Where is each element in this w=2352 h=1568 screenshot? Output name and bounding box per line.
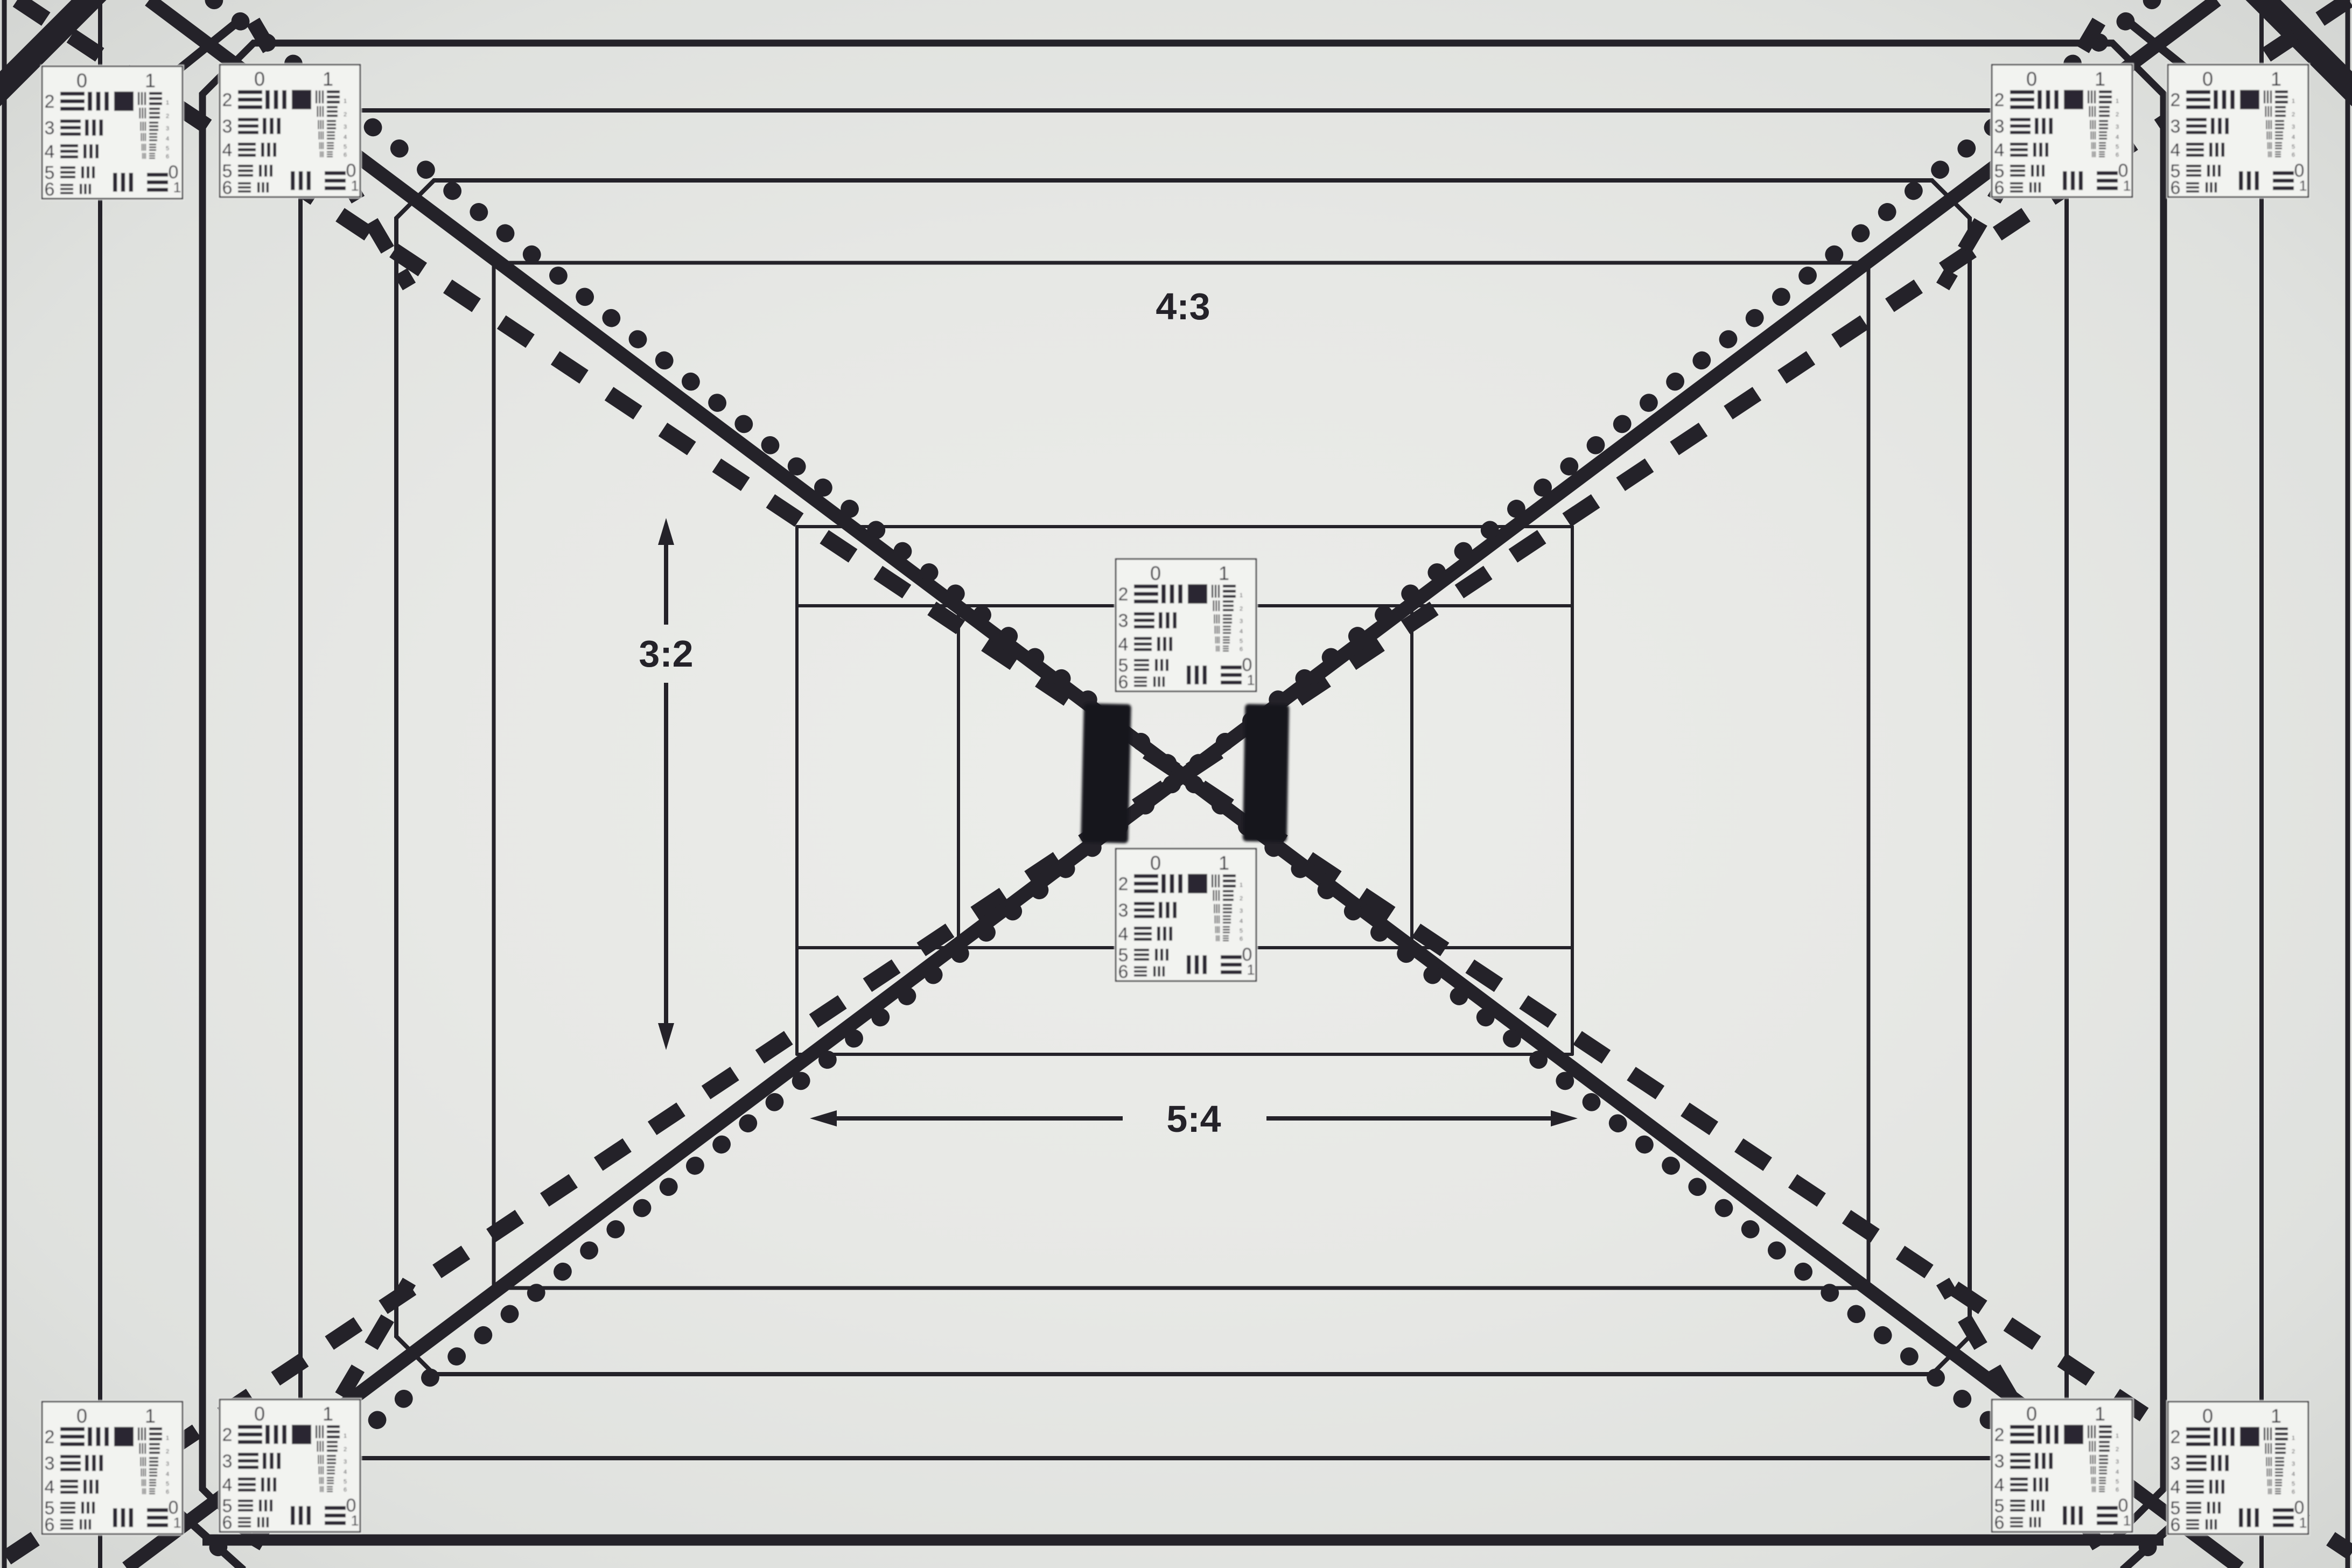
- tri-bar: [1134, 874, 1158, 878]
- tri-bar: [96, 92, 101, 111]
- tri-bar: [2092, 1466, 2094, 1474]
- tri-bar: [265, 1425, 270, 1444]
- tri-bar: [2275, 1479, 2282, 1481]
- tri-bar: [238, 170, 253, 172]
- tri-bar: [104, 1427, 109, 1446]
- target-number: 6: [344, 152, 347, 158]
- tri-bar: [327, 148, 334, 149]
- tri-bar: [2035, 1453, 2039, 1469]
- tri-bar: [317, 106, 318, 117]
- tri-bar: [2269, 120, 2270, 129]
- tri-bar: [1216, 904, 1217, 913]
- tri-bar: [2230, 1427, 2235, 1446]
- tri-bar: [238, 1521, 251, 1523]
- target-number: 6: [344, 1487, 347, 1493]
- tri-bar: [2093, 1477, 2094, 1484]
- tri-bar: [2038, 1425, 2042, 1444]
- label-aspect-3-2: 3:2: [639, 633, 693, 675]
- tri-bar: [2275, 153, 2281, 155]
- tri-bar: [2010, 1440, 2034, 1444]
- tri-bar: [2207, 1502, 2210, 1514]
- tri-bar: [327, 1431, 340, 1433]
- tri-bar: [2088, 1425, 2089, 1438]
- tri-bar: [1134, 882, 1158, 886]
- tri-bar: [319, 1466, 320, 1474]
- tri-bar: [145, 108, 146, 118]
- tri-bar: [2207, 165, 2210, 177]
- tri-bar: [1134, 648, 1152, 651]
- target-number: 6: [2171, 178, 2181, 198]
- tri-bar: [92, 166, 95, 178]
- tri-bar: [325, 1506, 346, 1510]
- tri-bar: [263, 118, 267, 134]
- tri-bar: [2099, 1436, 2112, 1438]
- tri-bar: [238, 1425, 262, 1429]
- target-number: 1: [1240, 882, 1243, 888]
- tri-bar: [1221, 681, 1242, 684]
- tri-bar: [1166, 659, 1168, 671]
- tri-bar: [2186, 174, 2201, 177]
- tri-bar: [2264, 90, 2265, 103]
- tri-bar: [2095, 1441, 2096, 1452]
- tri-bar: [238, 1459, 258, 1462]
- tri-bar: [2099, 1480, 2106, 1481]
- target-number: 4: [1240, 918, 1243, 925]
- target-number: 4: [166, 136, 169, 142]
- target-number: 5: [2116, 144, 2119, 150]
- target-number: 6: [2292, 1489, 2295, 1495]
- tri-bar: [261, 143, 264, 157]
- tri-bar: [2275, 110, 2286, 113]
- tri-bar: [149, 1461, 158, 1462]
- tri-bar: [1221, 970, 1242, 974]
- tri-bar: [149, 97, 162, 100]
- tri-bar: [1159, 902, 1163, 918]
- target-number: 3: [1118, 611, 1129, 631]
- tri-bar: [327, 156, 333, 157]
- tri-bar: [2275, 1452, 2286, 1454]
- tri-bar: [2099, 1491, 2105, 1492]
- tri-bar: [317, 1441, 318, 1452]
- target-number: 4: [45, 1477, 55, 1497]
- tri-bar: [2035, 118, 2039, 134]
- tri-bar: [1134, 585, 1158, 589]
- target-square: [114, 1427, 134, 1446]
- tri-bar: [1134, 954, 1149, 956]
- tri-bar: [2097, 1506, 2118, 1510]
- target-number: 6: [1118, 672, 1129, 692]
- tri-bar: [149, 122, 158, 123]
- tri-bar: [149, 136, 157, 138]
- tri-bar: [2186, 1523, 2199, 1525]
- tri-bar: [2186, 148, 2204, 151]
- tri-bar: [238, 131, 258, 134]
- tri-bar: [1134, 669, 1149, 671]
- tri-bar: [2010, 118, 2031, 121]
- tri-bar: [257, 183, 260, 193]
- target-number: 2: [222, 90, 233, 110]
- tri-bar: [321, 1477, 322, 1484]
- tri-bar: [147, 188, 168, 192]
- tri-bar: [2186, 1507, 2201, 1509]
- tri-bar: [60, 1491, 78, 1494]
- tri-bar: [1221, 666, 1242, 669]
- target-number: 1: [2095, 1403, 2105, 1425]
- tri-bar: [2094, 151, 2094, 157]
- tri-bar: [2092, 106, 2093, 117]
- tri-bar: [2186, 106, 2210, 109]
- tri-bar: [147, 180, 168, 184]
- tri-bar: [1134, 600, 1158, 604]
- tri-bar: [318, 120, 319, 129]
- tri-bar: [1203, 955, 1207, 974]
- target-square: [2064, 90, 2083, 109]
- tri-bar: [318, 1455, 319, 1464]
- tri-bar: [1218, 874, 1220, 887]
- target-number: 2: [1994, 90, 2005, 110]
- tri-bar: [322, 90, 324, 103]
- tri-bar: [2088, 90, 2089, 103]
- tri-bar: [145, 144, 146, 151]
- tri-bar: [2268, 106, 2269, 117]
- tri-bar: [273, 1478, 276, 1492]
- tri-bar: [149, 144, 156, 145]
- target-number: 1: [1219, 562, 1229, 584]
- tri-bar: [2010, 90, 2034, 94]
- target-number: 1: [2123, 178, 2131, 194]
- tri-bar: [2275, 1468, 2283, 1470]
- tri-bar: [2049, 118, 2053, 134]
- tri-bar: [2046, 1425, 2050, 1444]
- tri-bar: [1163, 637, 1166, 651]
- tri-bar: [327, 106, 338, 108]
- tri-bar: [147, 1516, 168, 1520]
- tri-bar: [2186, 183, 2199, 185]
- tri-bar: [2010, 143, 2028, 145]
- tri-bar: [2099, 120, 2108, 122]
- target-number: 2: [2171, 90, 2181, 110]
- tri-bar: [2095, 1486, 2096, 1492]
- tri-bar: [2269, 1479, 2270, 1486]
- tri-bar: [1217, 926, 1218, 933]
- tri-bar: [2267, 1479, 2269, 1486]
- tri-bar: [2271, 1488, 2272, 1494]
- tri-bar: [2186, 1502, 2201, 1504]
- target-number: 2: [1240, 895, 1243, 902]
- target-number: 5: [2116, 1479, 2119, 1485]
- tri-bar: [267, 1478, 270, 1492]
- target-number: 0: [254, 68, 265, 90]
- tri-bar: [141, 133, 142, 141]
- tri-bar: [2090, 1455, 2091, 1464]
- target-number: 1: [1247, 672, 1255, 688]
- tri-bar: [2010, 1525, 2023, 1528]
- tri-bar: [238, 1440, 262, 1444]
- tri-bar: [2091, 90, 2092, 103]
- target-number: 3: [2116, 124, 2119, 130]
- tri-bar: [2010, 131, 2031, 134]
- tri-bar: [2031, 1500, 2034, 1511]
- tri-bar: [2095, 131, 2096, 139]
- tri-bar: [2010, 1459, 2031, 1462]
- tri-bar: [1134, 932, 1152, 935]
- target-number: 4: [2292, 1471, 2295, 1478]
- tri-bar: [1166, 612, 1170, 628]
- tri-bar: [138, 1427, 139, 1440]
- target-number: 6: [2116, 152, 2119, 158]
- tri-bar: [1134, 637, 1152, 640]
- tri-bar: [1163, 927, 1166, 941]
- tri-bar: [316, 90, 317, 103]
- tri-bar: [2091, 1425, 2092, 1438]
- tri-bar: [1223, 595, 1236, 598]
- tri-bar: [2010, 191, 2023, 193]
- tri-bar: [142, 1443, 143, 1454]
- tri-bar: [261, 1478, 264, 1492]
- tri-bar: [121, 1508, 125, 1527]
- target-number: 2: [2171, 1427, 2181, 1447]
- tri-bar: [2275, 1447, 2286, 1450]
- tri-bar: [327, 151, 333, 152]
- tri-bar: [2186, 1468, 2207, 1471]
- tri-bar: [325, 186, 346, 190]
- tri-bar: [145, 153, 146, 159]
- tri-bar: [2010, 124, 2031, 128]
- tri-bar: [1219, 600, 1220, 611]
- tri-bar: [327, 135, 335, 136]
- target-number: 4: [2292, 134, 2295, 141]
- tri-bar: [1134, 967, 1147, 969]
- tri-bar: [1223, 605, 1234, 607]
- tri-bar: [1223, 629, 1231, 631]
- target-number: 1: [1219, 852, 1229, 874]
- usaf-target: 012345612345601: [2166, 63, 2310, 199]
- tri-bar: [2010, 186, 2023, 188]
- tri-bar: [327, 115, 338, 117]
- tri-bar: [2186, 131, 2207, 134]
- tri-bar: [2010, 170, 2025, 172]
- tri-bar: [327, 145, 334, 146]
- tri-bar: [96, 1427, 101, 1446]
- target-number: 1: [351, 1513, 359, 1529]
- tri-bar: [2095, 151, 2096, 157]
- tri-bar: [2099, 124, 2108, 125]
- tri-bar: [1223, 904, 1232, 906]
- tri-bar: [1173, 902, 1177, 918]
- tri-bar: [238, 1504, 253, 1507]
- velcro-pad-right: [1243, 704, 1289, 842]
- tri-bar: [2099, 1466, 2107, 1468]
- tri-bar: [2099, 145, 2106, 146]
- tri-bar: [129, 1508, 133, 1527]
- tri-bar: [2270, 1488, 2270, 1494]
- tri-bar: [238, 1489, 256, 1492]
- tri-bar: [2054, 1425, 2059, 1444]
- tri-bar: [2010, 1478, 2028, 1480]
- tri-bar: [149, 1482, 156, 1483]
- tri-bar: [1216, 626, 1217, 634]
- target-number: 4: [344, 134, 347, 141]
- tri-bar: [1160, 949, 1163, 961]
- tri-bar: [1223, 937, 1229, 939]
- tri-bar: [149, 1438, 162, 1440]
- tri-bar: [145, 1488, 146, 1494]
- target-number: 3: [1240, 618, 1243, 625]
- tri-bar: [238, 1525, 251, 1528]
- tri-bar: [144, 1427, 146, 1440]
- tri-bar: [238, 1478, 256, 1480]
- tri-bar: [1215, 636, 1216, 643]
- tri-bar: [2275, 1443, 2286, 1445]
- tri-bar: [60, 184, 73, 186]
- tri-bar: [2275, 131, 2283, 133]
- tri-bar: [140, 122, 141, 131]
- tri-bar: [2218, 165, 2221, 177]
- tri-bar: [2089, 106, 2090, 117]
- tri-bar: [1218, 585, 1220, 598]
- tri-bar: [291, 171, 295, 190]
- tri-bar: [143, 1479, 144, 1486]
- tri-bar: [2091, 131, 2092, 139]
- tri-bar: [85, 1455, 89, 1471]
- tri-bar: [327, 1482, 334, 1484]
- tri-bar: [2270, 151, 2270, 157]
- target-number: 1: [323, 68, 333, 90]
- tri-bar: [1223, 899, 1234, 901]
- tri-bar: [2239, 1508, 2243, 1527]
- tri-bar: [89, 1480, 93, 1494]
- target-number: 1: [2299, 178, 2307, 194]
- tri-bar: [2267, 1468, 2268, 1476]
- tri-bar: [267, 143, 270, 157]
- tri-bar: [2271, 106, 2272, 117]
- tri-bar: [2099, 153, 2105, 155]
- tri-bar: [2270, 90, 2272, 103]
- tri-bar: [2218, 118, 2222, 134]
- tri-bar: [2271, 151, 2272, 157]
- tri-bar: [1169, 927, 1172, 941]
- tri-bar: [323, 106, 324, 117]
- tri-bar: [2099, 1455, 2108, 1457]
- tri-bar: [60, 1461, 81, 1465]
- tri-bar: [2010, 1425, 2034, 1429]
- tri-bar: [1223, 614, 1232, 616]
- tri-bar: [1134, 619, 1154, 622]
- tri-bar: [1134, 915, 1154, 918]
- tri-bar: [322, 1425, 324, 1438]
- tri-bar: [1223, 915, 1231, 917]
- tri-bar: [60, 92, 85, 96]
- tri-bar: [325, 171, 346, 175]
- tri-bar: [1173, 612, 1177, 628]
- tri-bar: [2097, 179, 2118, 183]
- tri-bar: [2010, 1509, 2025, 1511]
- tri-bar: [2186, 165, 2201, 167]
- tri-bar: [1223, 626, 1231, 627]
- usaf-target: 012345612345601: [1990, 1398, 2134, 1534]
- tri-bar: [2186, 1461, 2207, 1465]
- tri-bar: [60, 1511, 75, 1514]
- tri-bar: [2225, 118, 2229, 134]
- tri-bar: [325, 1521, 346, 1525]
- tri-bar: [60, 166, 75, 169]
- tri-bar: [327, 1441, 338, 1443]
- tri-bar: [2255, 171, 2259, 190]
- tri-bar: [149, 1452, 160, 1454]
- tri-bar: [1134, 958, 1149, 961]
- tri-bar: [259, 1500, 262, 1511]
- tri-bar: [60, 1485, 78, 1488]
- tri-bar: [149, 92, 162, 95]
- tri-bar: [1223, 890, 1234, 892]
- camera-test-chart-photo: 4:3 3:2 5:4 0123456123456010123456123456…: [0, 0, 2352, 1568]
- tri-bar: [1223, 926, 1230, 928]
- tri-bar: [2034, 183, 2036, 193]
- target-square: [2240, 90, 2259, 109]
- tri-bar: [2186, 124, 2207, 128]
- tri-bar: [327, 131, 335, 133]
- target-number: 6: [2116, 1487, 2119, 1493]
- target-number: 6: [2171, 1515, 2181, 1535]
- tri-bar: [323, 131, 324, 139]
- tri-bar: [2079, 171, 2083, 190]
- target-number: 2: [45, 1427, 55, 1447]
- tri-bar: [2071, 171, 2075, 190]
- tri-bar: [2221, 1480, 2224, 1494]
- tri-bar: [2186, 1480, 2204, 1482]
- tri-bar: [1215, 915, 1216, 923]
- target-number: 5: [1240, 928, 1243, 934]
- tri-bar: [83, 144, 87, 158]
- tri-bar: [149, 1457, 158, 1459]
- tri-bar: [327, 1466, 335, 1468]
- tri-bar: [1223, 648, 1229, 649]
- target-number: 2: [2116, 1446, 2119, 1453]
- tri-bar: [1223, 639, 1230, 641]
- tri-bar: [327, 138, 335, 139]
- tri-bar: [238, 1453, 258, 1456]
- target-number: 6: [166, 153, 169, 160]
- tri-bar: [2275, 148, 2282, 149]
- tri-bar: [2275, 96, 2288, 99]
- tri-bar: [1223, 880, 1236, 883]
- tri-bar: [2275, 1461, 2284, 1462]
- tri-bar: [2267, 142, 2269, 149]
- tri-bar: [143, 122, 144, 131]
- tri-bar: [60, 1520, 73, 1522]
- tri-bar: [2265, 106, 2266, 117]
- tri-bar: [2210, 183, 2212, 193]
- tri-bar: [2211, 118, 2215, 134]
- tri-bar: [1223, 585, 1236, 587]
- tri-bar: [2095, 120, 2096, 129]
- tri-bar: [320, 1455, 321, 1464]
- tri-bar: [1215, 626, 1216, 634]
- target-square: [2240, 1427, 2259, 1446]
- tri-bar: [149, 116, 160, 118]
- tri-bar: [2275, 1457, 2284, 1459]
- tri-bar: [1153, 677, 1156, 687]
- target-number: 2: [344, 1446, 347, 1453]
- tri-bar: [323, 151, 324, 157]
- tri-bar: [88, 92, 92, 111]
- tri-bar: [238, 186, 251, 188]
- target-number: 6: [166, 1489, 169, 1495]
- target-number: 4: [1994, 1475, 2005, 1495]
- tri-bar: [149, 146, 156, 148]
- tri-bar: [2268, 151, 2269, 157]
- target-square: [114, 92, 134, 111]
